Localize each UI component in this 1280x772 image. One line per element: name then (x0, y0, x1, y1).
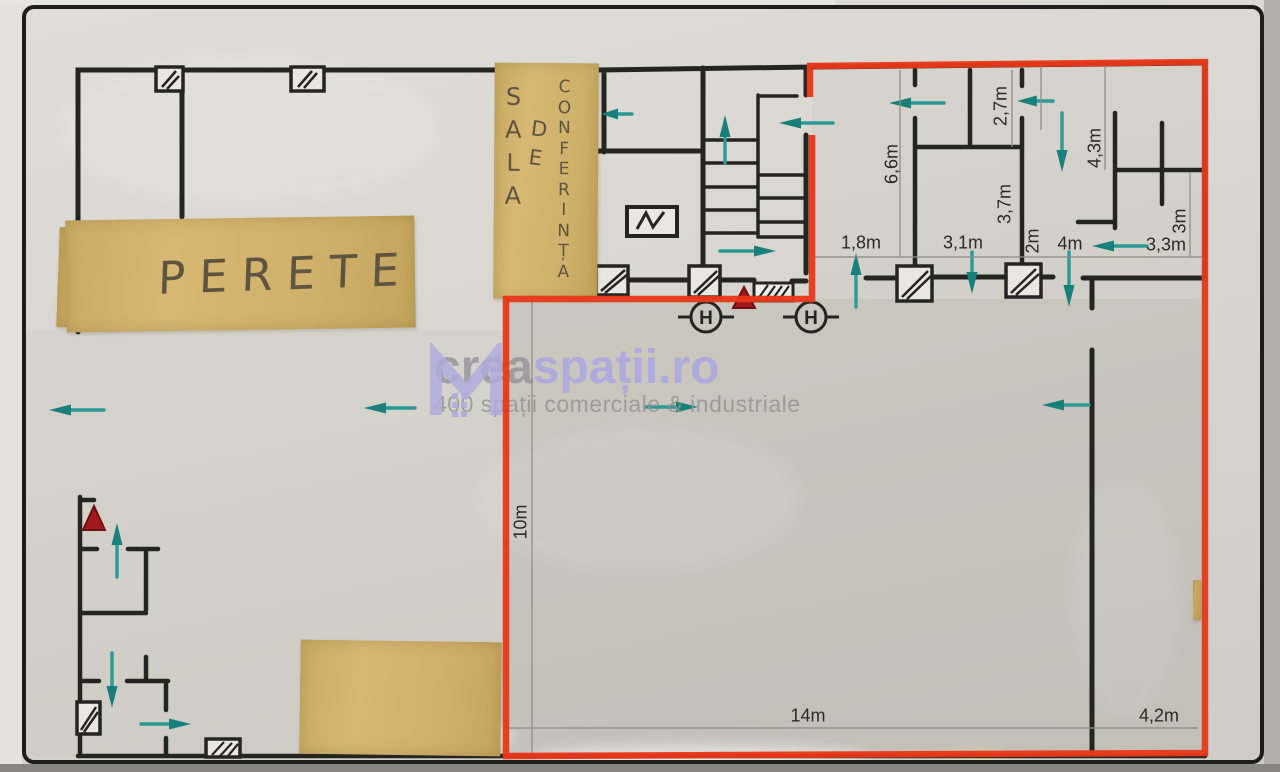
photo-edge-bottom (0, 764, 1280, 772)
photo-edge-right (1264, 0, 1280, 772)
photo-frame (0, 0, 1280, 772)
plan-border-frame (24, 7, 1262, 762)
photo-edge-top (0, 0, 835, 5)
floorplan-photo: H H PERETE SALA DE CONFERINȚA (0, 0, 1280, 772)
photo-edge-left (0, 0, 22, 772)
